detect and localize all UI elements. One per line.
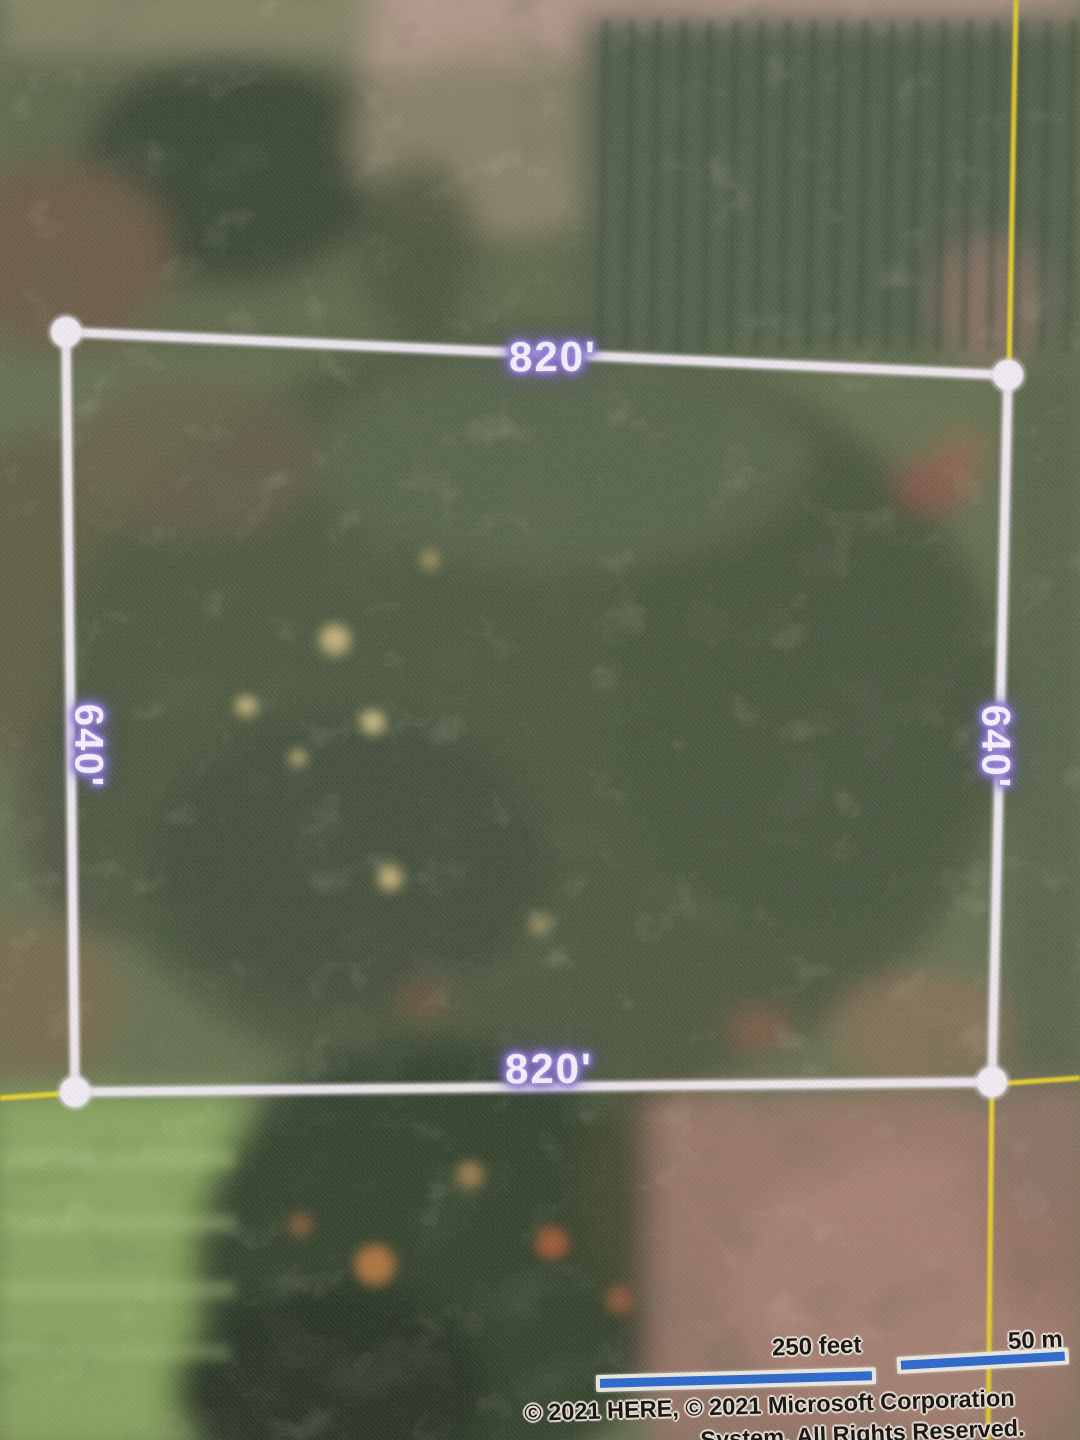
aerial-photo — [0, 0, 1080, 1440]
vertex-marker-bottom-right — [977, 1067, 1008, 1098]
vertex-marker-top-left — [51, 317, 82, 348]
vertex-marker-bottom-left — [60, 1077, 91, 1108]
map-canvas: 820' 820' 640' 640' 250 feet 50 m © 2021… — [0, 0, 1080, 1440]
vertex-marker-top-right — [993, 360, 1024, 391]
